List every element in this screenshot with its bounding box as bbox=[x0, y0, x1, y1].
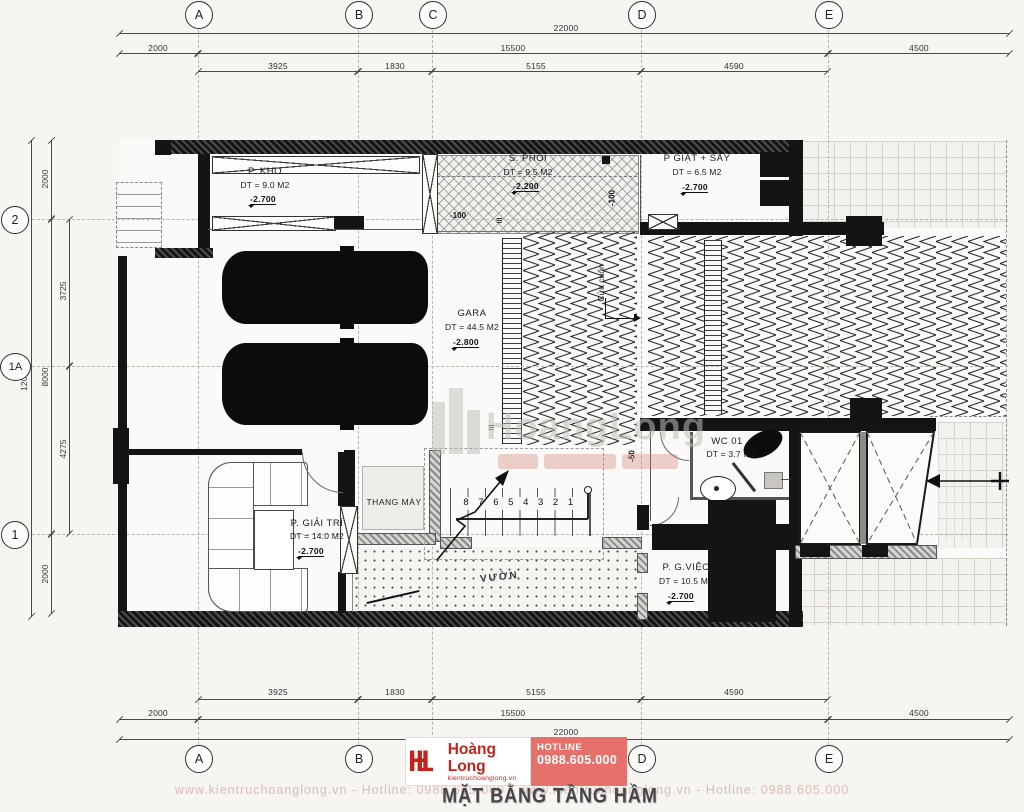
drawing-title: MẶT BẰNG TẦNG HẦM bbox=[389, 785, 712, 810]
dim-seg bbox=[641, 699, 828, 700]
dim-left-4275: 4275 bbox=[58, 440, 68, 459]
exterior-stair-dashed bbox=[116, 182, 162, 248]
hotline-box: HOTLINE 0988.605.000 bbox=[531, 737, 627, 786]
dim-left-2000a: 2000 bbox=[40, 170, 50, 189]
stair-rail-post bbox=[587, 492, 589, 519]
grid-line-1a bbox=[27, 366, 1008, 367]
room-label-wc: WC 01 bbox=[711, 436, 743, 447]
brand-name: Hoàng Long bbox=[448, 741, 528, 775]
area-gviec: DT = 10.5 M2 bbox=[659, 576, 713, 586]
dim-seg bbox=[69, 366, 70, 534]
wall-step-left bbox=[155, 248, 213, 258]
dim-bottom-4590: 4590 bbox=[724, 687, 744, 697]
hotline-number: 0988.605.000 bbox=[537, 753, 621, 767]
dim-bottom-1830: 1830 bbox=[385, 687, 405, 697]
dim-line-left-total bbox=[31, 140, 32, 617]
shafts bbox=[796, 430, 938, 548]
dim-seg bbox=[51, 140, 52, 219]
stair-post-circle bbox=[584, 486, 592, 494]
room-label-kho: P. KHO bbox=[248, 166, 282, 177]
braced-column bbox=[422, 154, 438, 234]
washer bbox=[760, 152, 790, 177]
wall-bit-gviec3 bbox=[637, 593, 648, 620]
grid-bubble-a-bottom: A bbox=[185, 745, 213, 773]
leader-arrowhead bbox=[634, 314, 641, 322]
sink-drain bbox=[714, 486, 719, 491]
area-wc: DT = 3.7 M2 bbox=[706, 449, 755, 459]
dim-seg bbox=[198, 71, 358, 72]
area-phoi: DT = 9.5 M2 bbox=[503, 167, 552, 177]
dim-top-15500: 15500 bbox=[501, 43, 526, 53]
sofa-bottom-arm bbox=[208, 568, 308, 612]
wall-bit-gviec2 bbox=[637, 553, 648, 573]
room-label-giaitri: P. GIẢI TRÍ bbox=[291, 518, 344, 529]
grid-bubble-1a: 1A bbox=[0, 353, 31, 381]
level-gara: -2.800 bbox=[453, 337, 479, 348]
dim-seg bbox=[198, 719, 828, 720]
coffee-table bbox=[254, 510, 294, 570]
stair-break-arrow bbox=[425, 460, 525, 565]
dim-bottom-5155: 5155 bbox=[526, 687, 546, 697]
floor-plan-sheet: 22000 2000 15500 4500 3925 1830 5155 459… bbox=[0, 0, 1024, 812]
grid-bubble-c-top: C bbox=[419, 1, 447, 29]
dim-left-8000: 8000 bbox=[40, 368, 50, 387]
wall-left-upper bbox=[198, 154, 210, 250]
dim-bottom-2000: 2000 bbox=[148, 708, 168, 718]
hatch-mark-a: ≡ bbox=[496, 215, 502, 227]
dim-top-2000: 2000 bbox=[148, 43, 168, 53]
level-giat: -2.700 bbox=[682, 182, 708, 193]
room-label-gviec: P. G.VIỆC bbox=[662, 562, 709, 573]
room-label-giat: P GIẶT + SẤY bbox=[664, 153, 731, 164]
dim-seg bbox=[51, 534, 52, 614]
area-giat: DT = 6.5 M2 bbox=[672, 167, 721, 177]
entry-arrow bbox=[922, 468, 1010, 494]
grid-bubble-b-bottom: B bbox=[345, 745, 373, 773]
grid-bubble-b-top: B bbox=[345, 1, 373, 29]
drain-grate-strip bbox=[704, 240, 722, 414]
ramp-hatch-right bbox=[648, 236, 1006, 416]
dim-seg bbox=[69, 219, 70, 366]
hatch-mark-b: ≡ bbox=[488, 422, 494, 434]
wall-lounge-top bbox=[126, 449, 302, 455]
wall-exterior-top bbox=[155, 140, 803, 154]
grid-bubble-d-top: D bbox=[628, 1, 656, 29]
paving-tiles-top-right bbox=[802, 141, 1008, 228]
grid-bubble-2: 2 bbox=[1, 206, 29, 234]
area-giaitri: DT = 14.0 M2 bbox=[290, 531, 344, 541]
logo-left-box: HL Hoàng Long kientruchoanglong.vn bbox=[405, 737, 531, 786]
dim-seg bbox=[432, 71, 641, 72]
hotline-label: HOTLINE bbox=[537, 742, 621, 753]
column-left bbox=[113, 428, 129, 484]
rolling-door-strip bbox=[502, 238, 522, 444]
logo-monogram: HL bbox=[408, 747, 442, 777]
grid-bubble-e-bottom: E bbox=[815, 745, 843, 773]
dim-top-4590: 4590 bbox=[724, 61, 744, 71]
wc-leader bbox=[781, 479, 790, 480]
dim-seg bbox=[198, 699, 358, 700]
storage-shelf-bottom bbox=[212, 216, 336, 231]
wall-exterior-bottom bbox=[118, 611, 803, 627]
level-kho: -2.700 bbox=[250, 194, 276, 205]
wall-garden-edge-b bbox=[602, 537, 642, 549]
dim-seg bbox=[119, 719, 198, 720]
grid-line-e bbox=[828, 30, 829, 755]
dryer bbox=[760, 180, 790, 206]
paving-tiles-bottom-right bbox=[798, 558, 1008, 626]
dim-seg bbox=[432, 699, 641, 700]
dim-bottom-4500: 4500 bbox=[909, 708, 929, 718]
dim-top-5155: 5155 bbox=[526, 61, 546, 71]
dim-seg bbox=[198, 53, 828, 54]
car-bottom bbox=[222, 343, 428, 425]
dim-seg bbox=[828, 53, 1010, 54]
gviec-desk-vertical bbox=[708, 500, 776, 622]
dim-top-1830: 1830 bbox=[385, 61, 405, 71]
brand-text-col: Hoàng Long kientruchoanglong.vn bbox=[448, 741, 528, 782]
wc-shower-box bbox=[764, 472, 783, 489]
grid-bubble-a-top: A bbox=[185, 1, 213, 29]
room-label-phoi: S. PHOI bbox=[509, 153, 547, 164]
leader-v bbox=[605, 298, 606, 318]
room-label-gara: GARA bbox=[458, 308, 487, 319]
dim-left-3725: 3725 bbox=[58, 282, 68, 301]
level-mark-100b: -100 bbox=[608, 190, 617, 206]
marker-dot bbox=[602, 156, 610, 164]
level-giaitri: -2.700 bbox=[298, 546, 324, 557]
rolling-door-note: Cửa cuốn bbox=[596, 264, 606, 301]
wall-lounge-right-b bbox=[338, 572, 346, 613]
dim-top-3925: 3925 bbox=[268, 61, 288, 71]
column-ramp-top bbox=[846, 216, 882, 246]
dim-top-total: 22000 bbox=[554, 23, 579, 33]
dim-line-top-total bbox=[119, 33, 1010, 34]
dim-bottom-total: 22000 bbox=[554, 727, 579, 737]
logo-block: HL Hoàng Long kientruchoanglong.vn HOTLI… bbox=[405, 737, 627, 786]
wall-wc-left bbox=[690, 432, 693, 500]
boundary-dashed-ramp bbox=[930, 416, 1006, 417]
leader-h bbox=[605, 318, 635, 319]
level-mark-50: -50 bbox=[628, 450, 637, 462]
dim-seg bbox=[51, 219, 52, 534]
laundry-cabinet bbox=[648, 214, 678, 230]
wall-bit-gviec bbox=[637, 505, 649, 530]
grid-bubble-e-top: E bbox=[815, 1, 843, 29]
line-phoi-bottom bbox=[437, 231, 638, 232]
grid-line-d bbox=[641, 30, 642, 755]
shelf-black-stub bbox=[334, 216, 364, 229]
car-top bbox=[222, 251, 428, 324]
dim-seg bbox=[641, 71, 828, 72]
level-mark-100a: -100 bbox=[450, 211, 466, 220]
ramp-hatch-left bbox=[523, 232, 637, 445]
grid-bubble-1: 1 bbox=[1, 521, 29, 549]
grid-line-a bbox=[198, 30, 199, 755]
area-gara: DT = 44.5 M2 bbox=[445, 322, 499, 332]
dim-bottom-3925: 3925 bbox=[268, 687, 288, 697]
grid-line-c bbox=[432, 30, 433, 755]
dim-top-4500: 4500 bbox=[909, 43, 929, 53]
dim-seg bbox=[358, 71, 432, 72]
boundary-dashed-right bbox=[1006, 140, 1007, 626]
level-gviec: -2.700 bbox=[668, 591, 694, 602]
dim-left-2000b: 2000 bbox=[40, 565, 50, 584]
dim-bottom-15500: 15500 bbox=[501, 708, 526, 718]
wall-corner-tl bbox=[155, 140, 171, 155]
grid-bubble-d-bottom: D bbox=[628, 745, 656, 773]
level-phoi: -2.200 bbox=[513, 181, 539, 192]
dim-seg bbox=[828, 719, 1010, 720]
area-kho: DT = 9.0 M2 bbox=[240, 180, 289, 190]
dim-seg bbox=[358, 699, 432, 700]
line-laundry-left bbox=[640, 155, 641, 222]
dim-seg bbox=[119, 53, 198, 54]
storage-shelf-top bbox=[212, 156, 420, 174]
brand-website: kientruchoanglong.vn bbox=[448, 775, 528, 782]
room-label-thangmay: THANG MÁY bbox=[366, 497, 421, 507]
